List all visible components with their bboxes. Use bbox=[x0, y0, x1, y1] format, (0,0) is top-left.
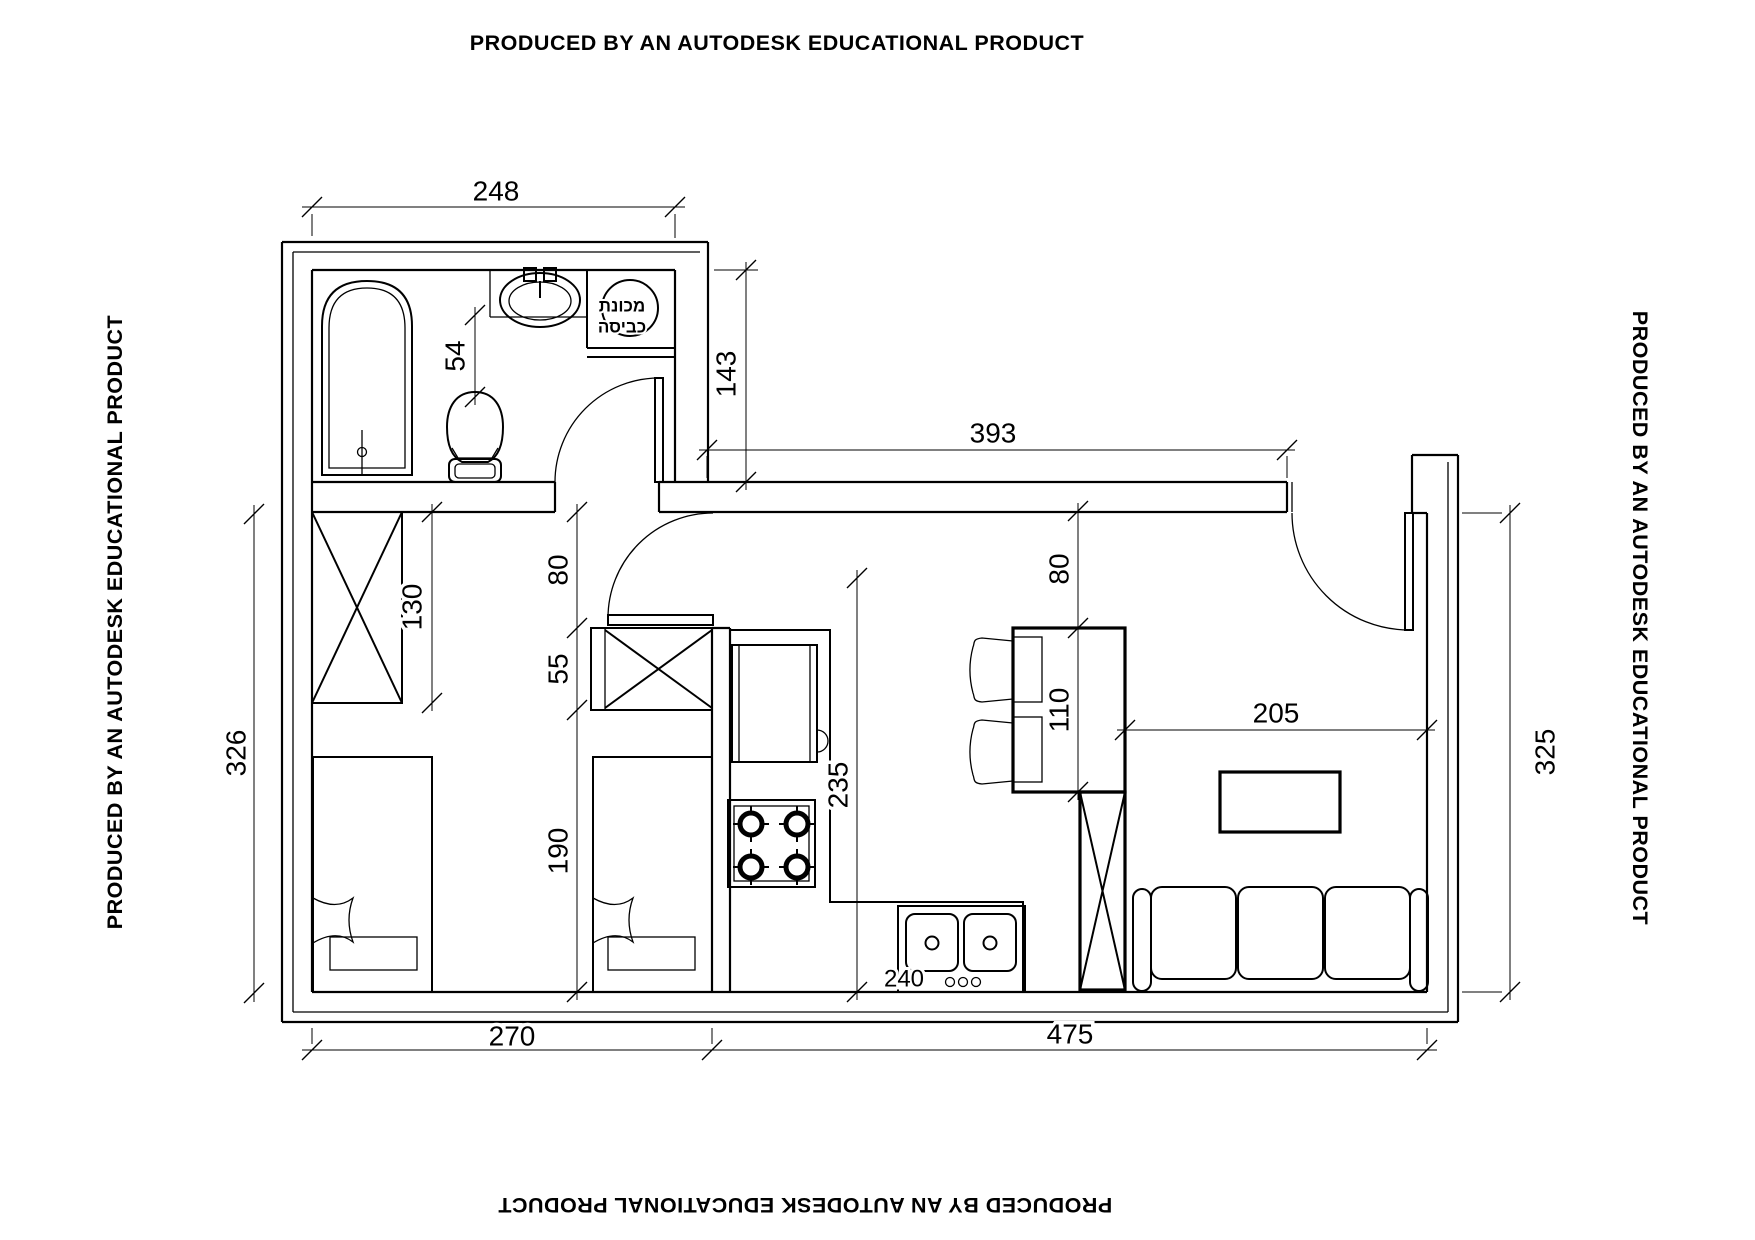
closet bbox=[591, 628, 712, 710]
dim-bedroom-depth: 326 bbox=[221, 504, 265, 1003]
bathtub bbox=[322, 281, 412, 476]
banner-right: PRODUCED BY AN AUTODESK EDUCATIONAL PROD… bbox=[1628, 311, 1652, 925]
refrigerator bbox=[732, 645, 828, 762]
bed-1-blanket-fold bbox=[330, 937, 417, 970]
dim-label-475: 475 bbox=[1047, 1019, 1094, 1050]
dim-label-325: 325 bbox=[1530, 729, 1561, 776]
dim-living-depth: 325 bbox=[1462, 503, 1561, 1002]
entry-door-leaf bbox=[1405, 513, 1413, 630]
sofa-armrest-right bbox=[1410, 889, 1428, 991]
stove bbox=[728, 800, 815, 887]
wardrobe bbox=[312, 512, 402, 703]
bathroom-door-leaf bbox=[655, 378, 663, 482]
washing-machine-label-1: מכונת bbox=[599, 297, 645, 316]
sofa-cushion-2 bbox=[1238, 887, 1323, 979]
dim-living-top-width: 393 bbox=[697, 418, 1297, 479]
dim-label-270: 270 bbox=[489, 1021, 536, 1052]
dim-label-326: 326 bbox=[221, 730, 252, 777]
bed-2 bbox=[593, 757, 712, 992]
dim-label-54: 54 bbox=[440, 340, 471, 371]
coffee-table bbox=[1220, 772, 1340, 832]
refrigerator-handle bbox=[817, 730, 828, 752]
dim-living-width: 205 bbox=[1115, 698, 1437, 741]
bedroom-door-swing-arc bbox=[608, 513, 713, 618]
bed-2-blanket-fold bbox=[608, 937, 695, 970]
dim-label-190: 190 bbox=[543, 828, 574, 875]
floor-plan-canvas: PRODUCED BY AN AUTODESK EDUCATIONAL PROD… bbox=[0, 0, 1755, 1240]
sofa-armrest-left bbox=[1133, 889, 1151, 991]
bed-1 bbox=[313, 757, 432, 992]
entry-door bbox=[1292, 513, 1413, 630]
entry-door-swing-arc bbox=[1292, 513, 1409, 630]
bedroom-door-leaf bbox=[608, 615, 713, 625]
washing-machine-label-2: כביסה bbox=[598, 318, 646, 337]
dim-label-55: 55 bbox=[543, 653, 574, 684]
bed-2-pillow bbox=[593, 898, 633, 943]
bedroom-door bbox=[608, 513, 713, 625]
chair-2 bbox=[970, 717, 1042, 784]
dim-bottom-row: 270 475 bbox=[302, 1019, 1437, 1061]
sofa bbox=[1133, 887, 1428, 991]
bed-1-pillow bbox=[313, 898, 353, 943]
dim-label-80-bedroom: 80 bbox=[543, 554, 574, 585]
dim-bathroom-width: 248 bbox=[302, 176, 685, 239]
storage-cabinet bbox=[1080, 792, 1125, 990]
stove-burners bbox=[733, 806, 815, 885]
banner-bottom: PRODUCED BY AN AUTODESK EDUCATIONAL PROD… bbox=[498, 1193, 1112, 1217]
bathroom-sink bbox=[490, 268, 587, 327]
dim-wardrobe-length: 130 bbox=[397, 502, 443, 713]
dim-label-393: 393 bbox=[970, 418, 1017, 449]
dim-label-130: 130 bbox=[397, 584, 428, 631]
sink-basin-left bbox=[906, 914, 958, 971]
banner-top: PRODUCED BY AN AUTODESK EDUCATIONAL PROD… bbox=[470, 31, 1084, 55]
dim-label-143: 143 bbox=[711, 351, 742, 398]
banner-left: PRODUCED BY AN AUTODESK EDUCATIONAL PROD… bbox=[103, 315, 127, 929]
kitchen-counter bbox=[730, 630, 1023, 992]
dim-entry-recess: 143 bbox=[711, 260, 759, 492]
dim-label-248: 248 bbox=[473, 176, 520, 207]
dim-label-240: 240 bbox=[884, 966, 924, 993]
dim-bedroom-left-column: 80 55 190 bbox=[543, 502, 588, 1002]
dim-label-235: 235 bbox=[823, 762, 854, 809]
bathroom-door bbox=[555, 378, 663, 482]
toilet bbox=[447, 392, 503, 482]
sofa-cushion-1 bbox=[1151, 887, 1236, 979]
dim-label-80-kitchen: 80 bbox=[1044, 553, 1075, 584]
sink-basin-right bbox=[964, 914, 1016, 971]
interior-walls bbox=[312, 482, 1292, 992]
washing-machine: מכונת כביסה bbox=[587, 270, 675, 357]
bathroom-door-swing-arc bbox=[555, 378, 659, 482]
dim-label-110: 110 bbox=[1044, 688, 1075, 733]
dim-kitchen-column: 80 110 bbox=[1044, 501, 1089, 802]
chair-1 bbox=[970, 637, 1042, 702]
drawing-sheet: PRODUCED BY AN AUTODESK EDUCATIONAL PROD… bbox=[0, 0, 1755, 1240]
sofa-cushion-3 bbox=[1325, 887, 1410, 979]
dim-label-205: 205 bbox=[1253, 698, 1300, 729]
